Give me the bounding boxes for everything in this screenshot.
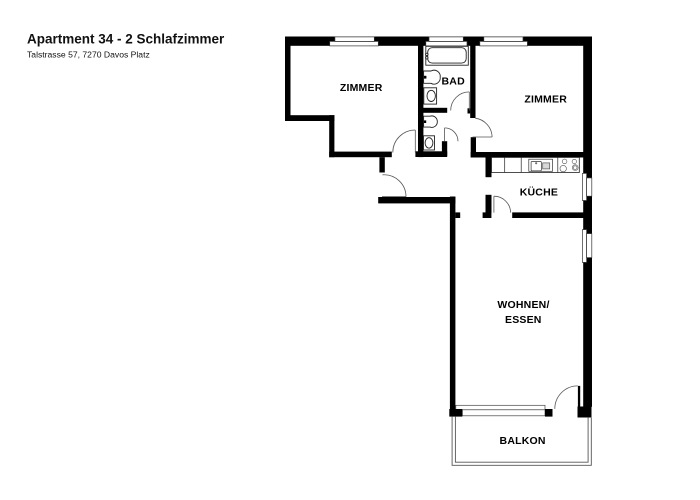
svg-text:WOHNEN/: WOHNEN/ <box>497 299 549 311</box>
svg-text:Apartment 34 - 2 Schlafzimmer: Apartment 34 - 2 Schlafzimmer <box>27 32 225 47</box>
svg-text:ESSEN: ESSEN <box>505 314 542 326</box>
svg-text:ZIMMER: ZIMMER <box>340 82 383 94</box>
svg-text:KÜCHE: KÜCHE <box>520 186 558 199</box>
svg-text:Talstrasse 57, 7270 Davos Plat: Talstrasse 57, 7270 Davos Platz <box>27 50 150 60</box>
svg-text:ZIMMER: ZIMMER <box>524 94 567 106</box>
svg-text:BAD: BAD <box>442 76 466 88</box>
svg-text:BALKON: BALKON <box>500 435 546 447</box>
